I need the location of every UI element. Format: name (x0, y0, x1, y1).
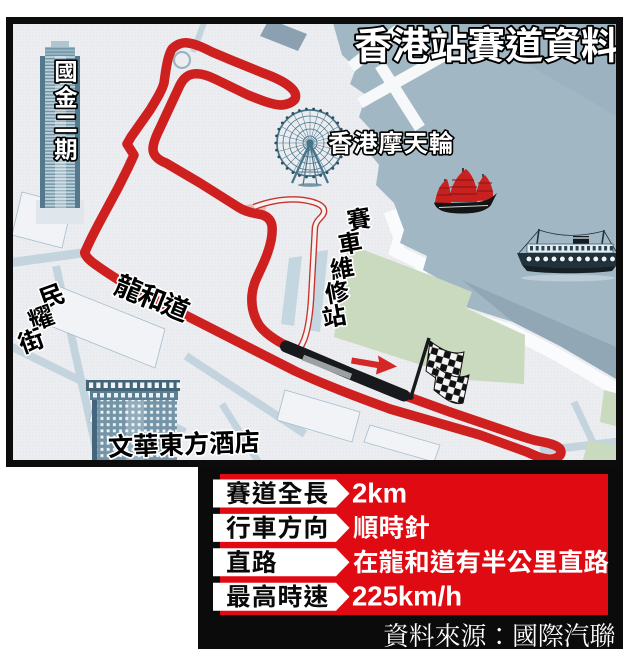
svg-text:225km/h: 225km/h (352, 581, 462, 612)
svg-text:2km: 2km (352, 478, 407, 509)
